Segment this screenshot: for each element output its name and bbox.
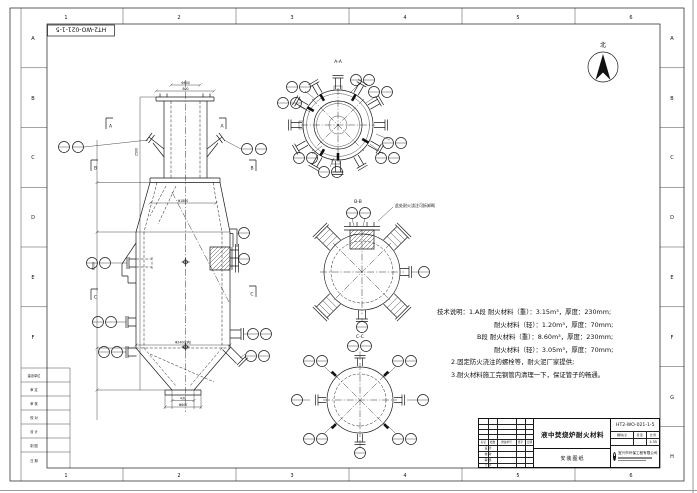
section-b-title: B-B [354,199,362,205]
grid-row-label: E [31,275,34,281]
dim-label: 430 [180,397,186,401]
grid-col-label: 6 [629,15,632,21]
notes-text: 1.A段 耐火材料（重）：3.15m³，厚度：230mm; [469,308,611,316]
manhole [210,229,239,273]
notes-line: 技术说明：1.A段 耐火材料（重）：3.15m³，厚度：230mm; [437,306,665,319]
notes-line: 耐火材料（轻）：3.05m³，厚度：70mm; [437,344,665,357]
strip-row-label: 校 对 [30,415,38,420]
section-a-title: A-A [334,59,343,65]
mark-label: 图样标记 [611,431,634,438]
dim-label: Φ600 [181,81,190,85]
section-view-a-a: A-A [278,59,407,178]
rev-header-cell: 签字 [516,439,525,445]
rev-header-cell: 日期 [525,439,534,445]
grid-row-label: B [670,96,674,102]
grid-row-label: C [670,155,674,161]
scale-value: 1:35 [647,438,660,445]
removable-block-note: 此处耐火浇注可拆卸砌 [395,202,435,208]
section-marker-a: A [220,124,224,130]
grid-col-label: 4 [403,473,406,479]
company-name: 宜兴市环保工程有限公司 [618,451,658,456]
company-area: 宜兴市环保工程有限公司 [611,445,660,467]
removable-cast-block: 此处耐火浇注可拆卸砌 [344,202,435,249]
notes-heading: 技术说明： [437,308,469,316]
drawing-title: 液中焚烧炉耐火材料 [534,419,611,448]
strip-row-label: 建设单位 [28,373,42,378]
section-c-title: C-C [356,334,364,340]
grid-col-label: 3 [290,15,293,21]
section-marker-a: A [109,124,113,130]
section-marker-c: C [94,295,97,301]
grid-row-label: F [671,335,674,341]
grid-col-label: 4 [403,15,406,21]
strip-row-label: 审 定 [30,387,38,392]
company-address-line [618,457,652,459]
drawing-number-rotated: HT2-WO-021-1-5 [56,26,107,33]
drawing-number-stamp: HT2-WO-021-1-5 [48,25,115,36]
grid-row-label: G [670,395,674,401]
sheet-type: 安装图纸 [534,448,611,467]
number-scale-area: HT2-WO-021-1-5 图样标记 质 量 比 例 1:35 宜兴市环保工程… [611,419,660,467]
dim-label: Φ1800 [178,199,189,203]
notes-line: 3.耐火材料施工完钢管内清理一下，保证管子的畅通。 [437,369,665,382]
notes-line: B段 耐火材料（重）：8.60m³，厚度：230mm; [437,331,665,344]
technical-notes: 技术说明：1.A段 耐火材料（重）：3.15m³，厚度：230mm; 耐火材料（… [437,306,665,382]
company-logo-icon [613,452,616,461]
grid-col-label: 6 [629,473,632,479]
notes-line: 2.固定防火浇注的螺栓等，耐火泥厂家提供; [437,356,665,369]
grid-col-label: 3 [290,473,293,479]
scale-label: 比 例 [647,431,660,438]
grid-col-label: 2 [177,473,180,479]
grid-row-label: A [670,36,674,42]
north-arrow: 北 [588,41,618,82]
grid-row-label: C [31,155,35,161]
grid-col-label: 5 [516,473,519,479]
north-label: 北 [600,41,606,49]
section-view-b-b: B-B 此处耐火浇注可拆卸砌 [313,199,435,333]
section-marker-b: B [94,166,97,172]
dim-label: 800 [182,87,188,91]
section-marker-c: C [250,292,253,298]
grid-col-label: 5 [516,15,519,21]
weight-value [634,438,647,445]
rev-header-cell: 修改单号 [497,439,516,445]
strip-row-label: 制 图 [30,443,37,448]
strip-row-label: 设 计 [30,429,38,434]
title-block: 标记 处数 修改单号 签字 日期 设 计 校 对 审 核 工 艺 液中焚烧炉耐火… [478,418,660,468]
dim-label: 2500 [135,148,139,156]
grid-row-label: D [670,215,674,221]
mark-value [611,438,634,445]
company-address-line [618,460,646,462]
grid-col-label: 2 [177,15,180,21]
sig-row-label: 工 艺 [479,463,497,468]
section-markers: A A B B C C [91,118,256,301]
grid-col-label: 1 [64,15,67,21]
grid-col-label: 1 [64,473,67,479]
vessel-elevation-view: Φ600 800 Φ1800 Φ2400(内) 430 Φ600 6000 25… [59,80,272,420]
section-view-c-c: C-C [292,334,429,459]
grid-row-label: D [31,215,35,221]
grid-row-label: E [670,275,673,281]
left-signature-strip: 建设单位 审 定 审 核 校 对 设 计 制 图 日 期 [21,368,70,468]
dim-label: Φ2400(内) [175,340,191,345]
revision-table: 标记 处数 修改单号 签字 日期 设 计 校 对 审 核 工 艺 [479,419,534,467]
grid-row-label: F [32,335,35,341]
title-area: 液中焚烧炉耐火材料 安装图纸 [534,419,611,467]
notes-line: 耐火材料（轻）：1.20m³，厚度：70mm; [437,319,665,332]
nozzle-callouts-elevation [59,140,272,362]
strip-row-label: 日 期 [30,458,37,463]
weight-label: 质 量 [634,431,647,438]
drawing-number: HT2-WO-021-1-5 [611,419,660,431]
grid-row-label: H [670,454,674,460]
dim-label: Φ600 [179,403,188,407]
grid-row-label: A [31,36,35,42]
cad-drawing-sheet: { "frame": { "cols": ["1","2","3","4","5… [0,0,697,493]
grid-row-label: B [31,96,35,102]
section-marker-b: B [250,166,253,172]
strip-row-label: 审 核 [30,401,38,406]
